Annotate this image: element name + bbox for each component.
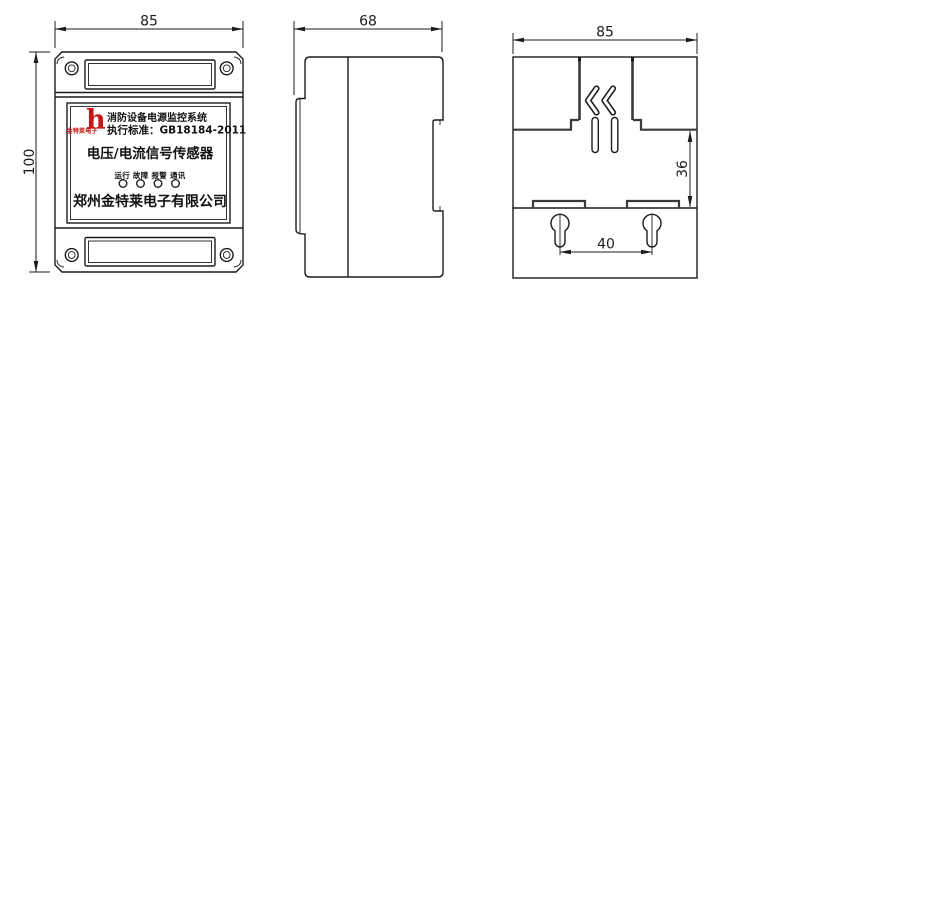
vent-slot — [612, 118, 618, 153]
led-circle — [119, 180, 127, 188]
led-circle — [172, 180, 180, 188]
brand-logo-text: 金特莱电子 — [66, 127, 99, 135]
dimension-value: 36 — [675, 160, 691, 178]
corner-detail — [234, 57, 241, 64]
drawing-sheet: 85 100 h 金特莱 — [0, 0, 948, 900]
engineering-drawing: 85 100 h 金特莱 — [0, 0, 948, 900]
chevron-fill — [588, 89, 597, 113]
dimension-value: 100 — [22, 149, 38, 176]
side-body-outline — [296, 57, 443, 277]
screw-hole-inner — [223, 252, 230, 259]
top-terminal-band — [55, 60, 243, 97]
channel-wall-cap — [631, 57, 634, 62]
corner-detail — [234, 260, 241, 267]
channel-step — [513, 120, 579, 130]
screw-hole — [220, 249, 233, 262]
screw-hole — [65, 249, 78, 262]
label-indicator-names: 运行 故障 报警 通讯 — [114, 170, 185, 180]
rear-hole-spacing-dimension: 40 — [560, 237, 652, 253]
label-company-name: 郑州金特莱电子有限公司 — [73, 193, 227, 210]
screw-hole-inner — [68, 65, 75, 72]
screw-hole — [65, 62, 78, 75]
terminal-cover-outer — [85, 60, 215, 89]
mount-tab — [533, 201, 585, 208]
terminal-cover-inner — [89, 64, 212, 86]
screw-hole-inner — [223, 65, 230, 72]
channel-step — [633, 120, 697, 130]
dimension-value: 85 — [596, 25, 614, 41]
screw-hole — [220, 62, 233, 75]
mount-tab — [627, 201, 679, 208]
side-view: 68 — [294, 14, 443, 278]
rear-view: 85 36 — [513, 25, 697, 279]
dimension-value: 68 — [359, 14, 377, 30]
keyhole-mount — [643, 214, 661, 256]
side-width-dimension: 68 — [294, 14, 442, 96]
keyhole-mount — [551, 214, 569, 256]
front-width-dimension: 85 — [55, 14, 243, 49]
dimension-value: 85 — [140, 14, 158, 30]
label-product-name: 电压/电流信号传感器 — [87, 145, 214, 162]
screw-hole-inner — [68, 252, 75, 259]
led-circle — [154, 180, 162, 188]
led-circle — [137, 180, 145, 188]
label-standard-line: 执行标准：GB18184-2011 — [107, 124, 246, 137]
rear-width-dimension: 85 — [513, 25, 697, 55]
chevron-left-icon — [588, 89, 597, 113]
chevron-left-icon — [605, 89, 614, 113]
front-height-dimension: 100 — [22, 52, 50, 272]
label-panel: h 金特莱电子 消防设备电源监控系统 执行标准：GB18184-2011 电压/… — [66, 103, 247, 223]
terminal-cover-inner — [89, 241, 212, 263]
rear-clip-height-dimension: 36 — [675, 131, 691, 207]
vent-slot — [592, 118, 598, 153]
bottom-terminal-band — [55, 228, 243, 266]
dimension-value: 40 — [597, 237, 615, 253]
channel-wall-cap — [578, 57, 581, 62]
corner-detail — [57, 260, 64, 267]
corner-detail — [57, 57, 64, 64]
label-system-line: 消防设备电源监控系统 — [107, 111, 207, 124]
terminal-cover-outer — [85, 238, 215, 267]
chevron-fill — [605, 89, 614, 113]
front-view: 85 100 h 金特莱 — [22, 14, 246, 273]
